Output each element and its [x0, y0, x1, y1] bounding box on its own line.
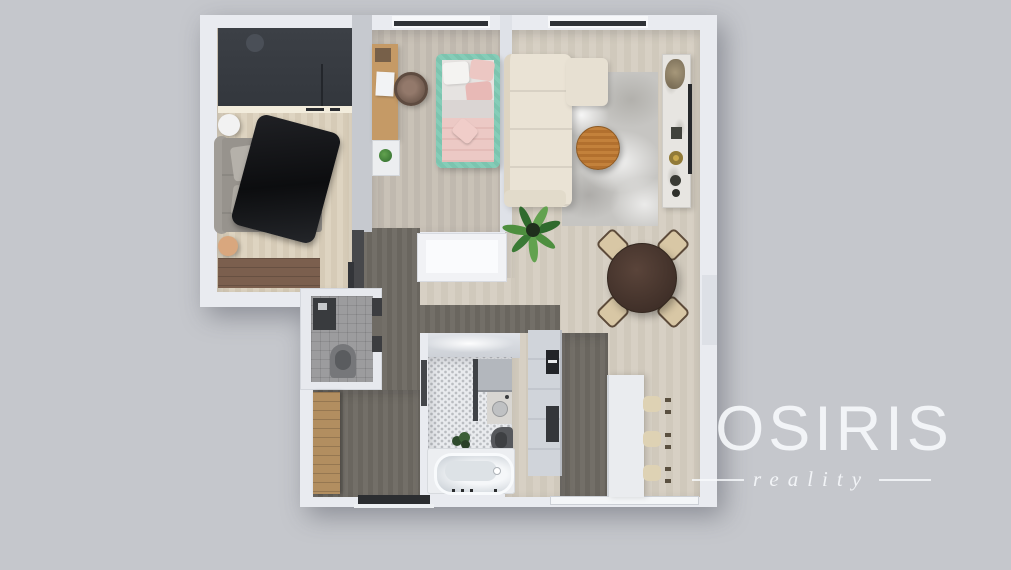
bedroom-stool: [218, 236, 238, 256]
sofa-chaise: [566, 58, 608, 106]
bathtub: [434, 453, 514, 495]
kitchen-island: [607, 375, 644, 497]
logo-rule-right: [879, 479, 931, 481]
vanity-sink: [492, 401, 508, 417]
bathroom-door-leaf: [421, 360, 427, 406]
console-bowl: [670, 175, 681, 186]
kitchen-oven: [546, 350, 559, 374]
kids-rattan-chair: [394, 72, 428, 106]
kids-pillow-pink: [469, 58, 496, 81]
bar-stool: [643, 465, 661, 481]
bathroom-toilet-bowl: [495, 432, 507, 448]
bathtub-fitting: [494, 489, 497, 492]
bathroom-cabinet: [478, 359, 512, 392]
entry-wardrobe: [313, 392, 340, 494]
console-gold-candle: [669, 151, 683, 165]
wall-block-inner-face: [426, 240, 498, 273]
living-floor-passage: [420, 278, 515, 308]
logo-tagline-text: reality: [753, 467, 870, 492]
kitchen-oven-2: [546, 406, 559, 442]
washer-panel: [318, 303, 327, 310]
wardrobe-handle-2: [330, 108, 340, 111]
wc-toilet-bowl: [335, 350, 351, 370]
bedroom-dresser-bench: [218, 258, 320, 288]
dining-table: [607, 243, 677, 313]
kitchen-window: [550, 496, 699, 505]
wardrobe-divider: [321, 64, 323, 106]
bathtub-fitting: [452, 489, 455, 492]
bathroom-vanity: [487, 392, 512, 424]
shelf-plant: [379, 149, 392, 162]
wc-toilet: [330, 344, 356, 378]
kids-bed-mattress: [442, 60, 494, 162]
wardrobe-handle: [306, 108, 324, 111]
entry-door-sill: [354, 504, 434, 508]
console-box: [671, 127, 682, 139]
right-wall-niche: [702, 275, 717, 345]
coffee-table: [576, 126, 620, 170]
wall-bedroom-kidsroom: [352, 15, 372, 232]
wc-door-jamb-2: [372, 336, 382, 352]
bathtub-fitting: [470, 489, 473, 492]
hallway-corridor-floor: [362, 228, 420, 294]
wall-block-hall-living: [417, 233, 507, 282]
bedroom-nightstand: [218, 114, 240, 136]
wall-tv: [688, 84, 692, 174]
bar-stool: [643, 431, 661, 447]
console-sideboard: [662, 54, 691, 208]
vanity-tap: [505, 395, 509, 399]
console-bowl-2: [672, 189, 680, 197]
oven-handle: [548, 360, 557, 363]
bedroom-wardrobe: [218, 28, 352, 106]
desk-laptop: [375, 72, 394, 97]
kids-room-window: [392, 16, 490, 28]
hallway-kitchen-strip-floor: [420, 305, 560, 333]
sofa-main: [504, 54, 572, 207]
wc-door-jamb: [372, 298, 382, 316]
desk-books: [375, 48, 391, 62]
bathroom-lit-counter: [428, 333, 520, 358]
bathtub-drain: [493, 467, 501, 475]
bar-stool: [643, 396, 661, 412]
plant-pot: [526, 223, 540, 237]
watermark-logo: OSIRIS reality: [692, 398, 976, 508]
wardrobe-deco-circle: [246, 34, 264, 52]
wardrobe-lit-shelf: [218, 106, 352, 113]
living-plant: [505, 203, 563, 261]
logo-brand-text: OSIRIS: [692, 398, 976, 461]
console-dried-plant: [665, 59, 685, 89]
hallway-wc-side-floor: [382, 292, 420, 390]
living-room-window: [548, 16, 648, 28]
bathtub-basin: [445, 461, 497, 481]
bathtub-fitting: [461, 489, 464, 492]
entry-door: [358, 495, 430, 504]
wc-washing-machine: [313, 298, 336, 330]
kids-window-frame: [394, 21, 488, 26]
logo-rule-left: [692, 479, 744, 481]
kids-bed: [436, 54, 500, 168]
kitchen-corridor-floor: [560, 333, 608, 497]
wc-door-opening: [372, 316, 382, 336]
kids-pillow-white: [442, 61, 469, 85]
kids-shelf: [372, 140, 400, 176]
living-window-frame: [550, 21, 646, 26]
floorplan-render: OSIRIS reality: [0, 0, 1011, 570]
logo-tagline: reality: [692, 467, 976, 492]
